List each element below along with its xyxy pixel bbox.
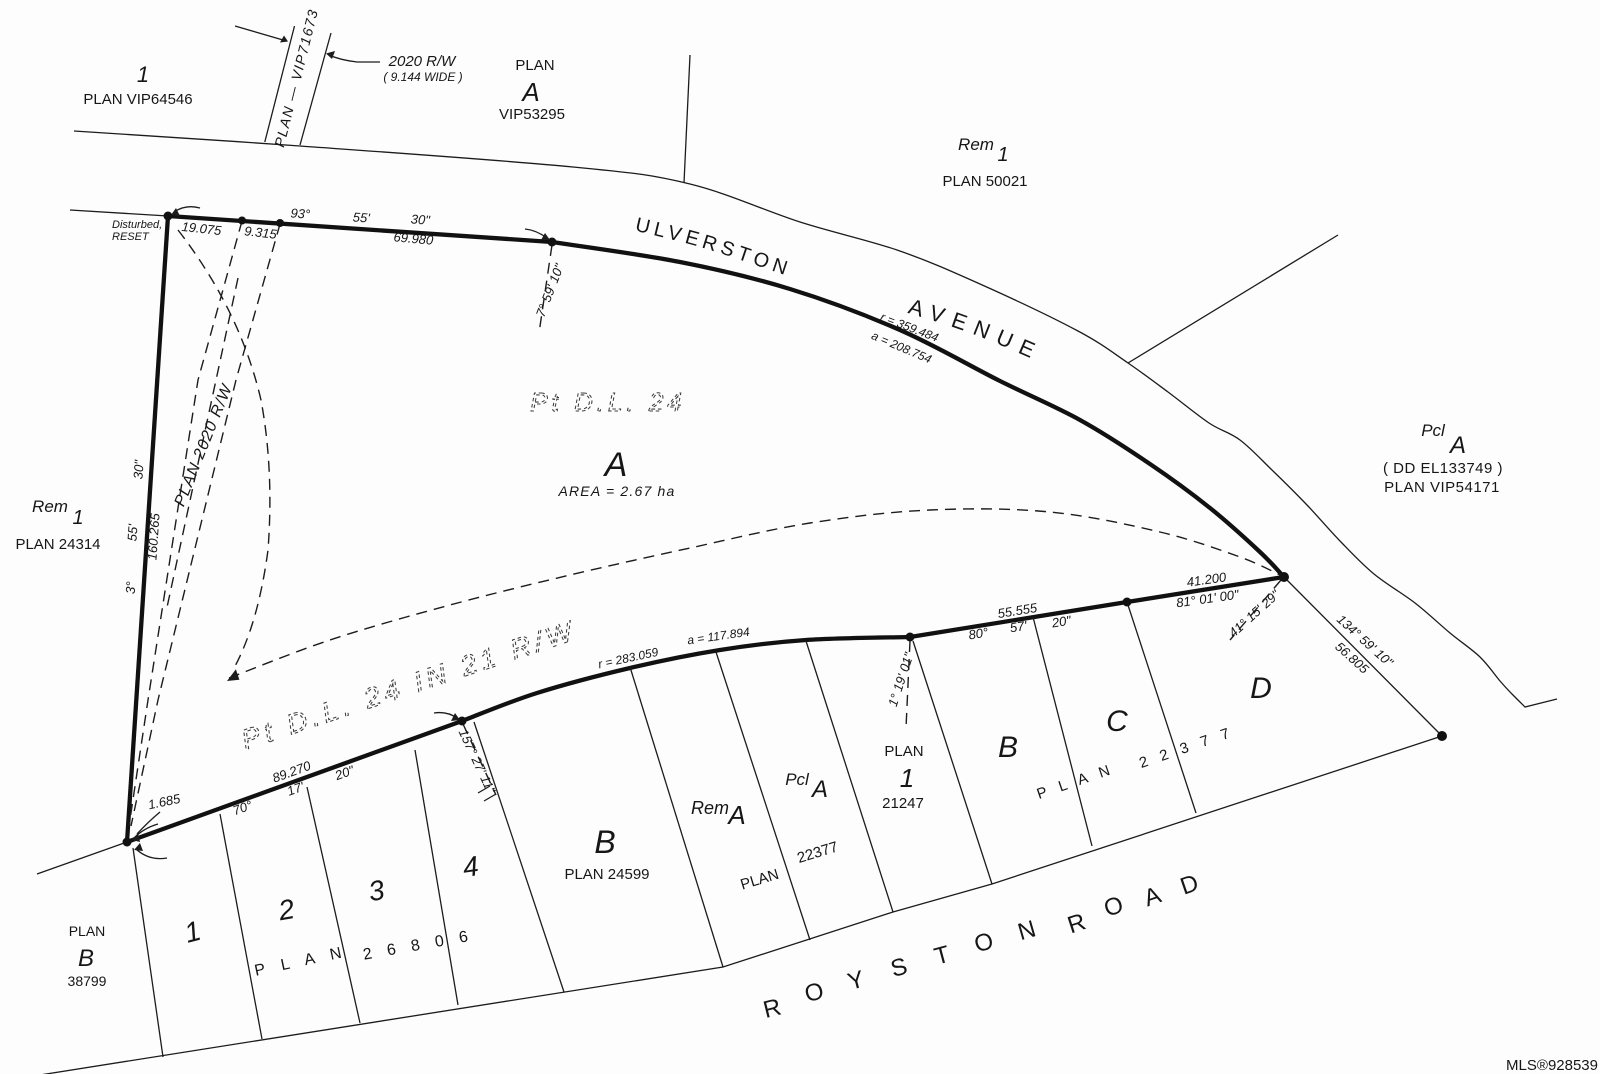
svg-text:D: D <box>1250 672 1272 705</box>
svg-text:1: 1 <box>137 62 149 87</box>
svg-text:57': 57' <box>1009 618 1029 636</box>
svg-text:A: A <box>1448 432 1466 459</box>
svg-text:PLAN 50021: PLAN 50021 <box>942 173 1027 190</box>
svg-text:PLAN: PLAN <box>884 743 923 760</box>
svg-text:Rem: Rem <box>958 135 994 154</box>
svg-text:1: 1 <box>181 915 204 949</box>
svg-text:80°: 80° <box>967 625 989 643</box>
svg-text:4: 4 <box>461 850 481 883</box>
svg-text:7° 59' 10": 7° 59' 10" <box>533 260 567 319</box>
svg-text:81° 01' 00": 81° 01' 00" <box>1175 587 1241 611</box>
svg-text:A: A <box>520 77 539 107</box>
svg-text:O: O <box>802 977 827 1008</box>
svg-text:Pt D.L. 24: Pt D.L. 24 <box>530 387 686 417</box>
svg-text:22377: 22377 <box>795 838 840 866</box>
svg-text:B: B <box>998 731 1018 764</box>
svg-text:MLS®928539: MLS®928539 <box>1506 1057 1598 1074</box>
svg-text:RESET: RESET <box>112 231 150 243</box>
svg-text:PLAN — VIP71673: PLAN — VIP71673 <box>271 7 321 149</box>
svg-text:VIP53295: VIP53295 <box>499 106 565 123</box>
svg-text:PLAN 2020 R/W: PLAN 2020 R/W <box>172 381 237 509</box>
svg-text:55': 55' <box>124 523 140 541</box>
svg-text:2020 R/W: 2020 R/W <box>388 53 458 70</box>
svg-text:PLAN 24599: PLAN 24599 <box>564 866 649 883</box>
svg-text:N: N <box>1015 915 1039 946</box>
svg-text:A: A <box>726 800 745 830</box>
svg-text:PLAN VIP64546: PLAN VIP64546 <box>83 91 192 108</box>
svg-text:Pcl: Pcl <box>785 770 810 789</box>
svg-text:20": 20" <box>1050 612 1074 630</box>
svg-text:1: 1 <box>997 144 1008 166</box>
svg-text:B: B <box>594 824 615 860</box>
svg-text:9.315: 9.315 <box>244 223 279 241</box>
svg-text:1° 19' 01": 1° 19' 01" <box>885 650 917 709</box>
svg-text:3°: 3° <box>123 581 139 594</box>
svg-text:Y: Y <box>845 966 867 996</box>
svg-text:70°: 70° <box>231 797 255 818</box>
svg-text:S: S <box>888 953 910 983</box>
svg-text:( 9.144 WIDE ): ( 9.144 WIDE ) <box>383 70 462 84</box>
svg-text:2: 2 <box>275 893 297 926</box>
svg-text:19.075: 19.075 <box>181 219 223 238</box>
svg-text:P L A N: P L A N <box>1035 761 1117 803</box>
svg-text:AREA = 2.67 ha: AREA = 2.67 ha <box>557 483 675 499</box>
svg-text:Disturbed,: Disturbed, <box>112 219 162 231</box>
svg-text:( DD EL133749 ): ( DD EL133749 ) <box>1383 460 1503 477</box>
svg-text:93°: 93° <box>290 205 311 221</box>
svg-text:D: D <box>1177 869 1202 900</box>
svg-text:A: A <box>810 776 828 803</box>
svg-text:160.265: 160.265 <box>144 512 162 561</box>
svg-text:Pcl: Pcl <box>1421 421 1446 440</box>
svg-text:Rem: Rem <box>32 497 68 516</box>
svg-text:a = 117.894: a = 117.894 <box>686 625 750 648</box>
svg-text:30": 30" <box>410 211 431 227</box>
svg-text:38799: 38799 <box>68 973 107 989</box>
svg-text:PLAN VIP54171: PLAN VIP54171 <box>1384 479 1500 496</box>
svg-text:2 2 3 7 7: 2 2 3 7 7 <box>1137 724 1236 772</box>
svg-text:157° 27' 11": 157° 27' 11" <box>456 727 499 797</box>
svg-text:PLAN: PLAN <box>738 866 780 894</box>
svg-text:PLAN 24314: PLAN 24314 <box>15 536 100 553</box>
svg-text:Rem: Rem <box>691 798 729 818</box>
svg-text:O: O <box>971 927 996 958</box>
svg-text:B: B <box>78 945 94 972</box>
svg-text:1.685: 1.685 <box>147 791 183 813</box>
svg-text:2 6 8 0 6: 2 6 8 0 6 <box>362 927 475 963</box>
svg-text:Pt D.L. 24 IN 21 R/W: Pt D.L. 24 IN 21 R/W <box>237 615 580 756</box>
svg-text:R: R <box>1064 908 1089 939</box>
svg-text:A: A <box>603 446 628 484</box>
svg-text:T: T <box>931 941 952 971</box>
svg-text:PLAN: PLAN <box>515 57 554 74</box>
svg-text:PLAN: PLAN <box>69 923 106 939</box>
svg-text:1: 1 <box>900 763 914 793</box>
svg-text:3: 3 <box>366 874 387 907</box>
svg-text:69.980: 69.980 <box>393 229 435 247</box>
svg-text:O: O <box>1101 891 1127 922</box>
svg-text:55': 55' <box>352 209 370 225</box>
svg-text:P L A N: P L A N <box>253 943 349 979</box>
svg-text:C: C <box>1106 705 1128 738</box>
svg-text:30": 30" <box>130 458 146 479</box>
svg-text:21247: 21247 <box>882 795 924 812</box>
svg-text:1: 1 <box>72 507 83 529</box>
svg-text:A: A <box>1141 882 1165 913</box>
svg-text:R: R <box>761 994 784 1024</box>
